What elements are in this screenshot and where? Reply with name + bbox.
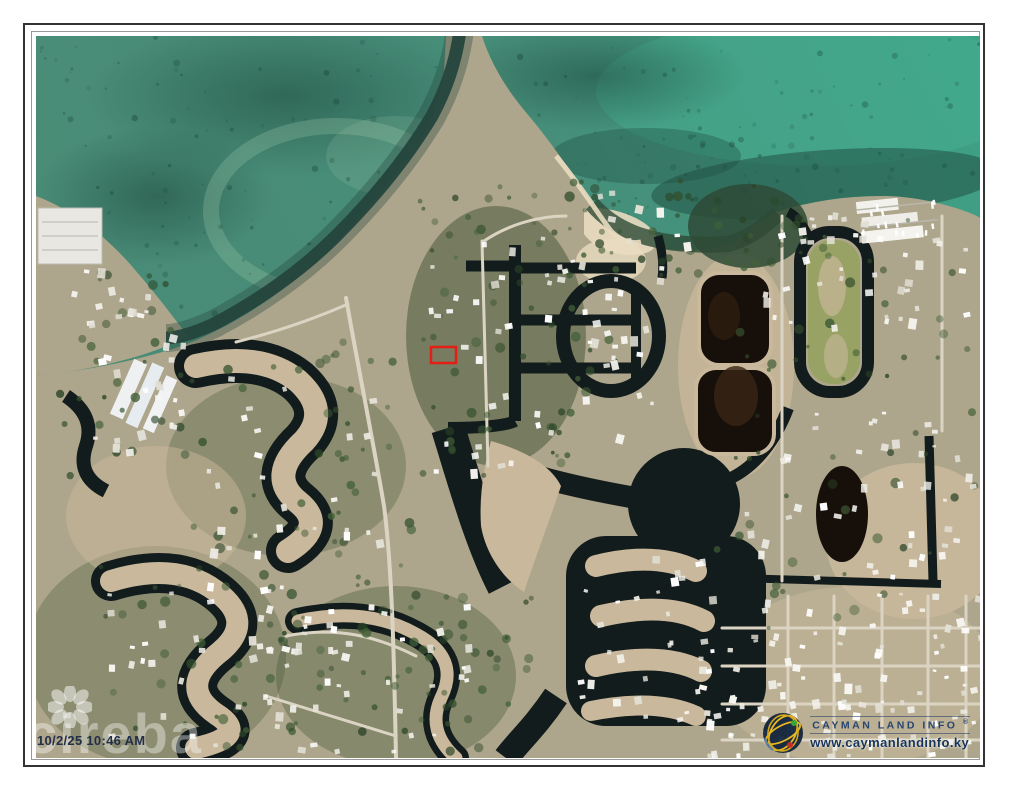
cireba-watermark: cireba: [36, 706, 203, 758]
caymanlandinfo-logo: CAYMAN LAND INFO ® www.caymanlandinfo.ky: [761, 710, 970, 756]
grass-island: [808, 240, 860, 384]
aerial-photo: cireba 10/2/25 10:46 AM CAYMAN LAND INFO…: [36, 36, 980, 758]
provider-text: CAYMAN LAND INFO ® www.caymanlandinfo.ky: [810, 716, 970, 751]
globe-icon: [761, 710, 805, 756]
registered-mark: ®: [963, 719, 968, 726]
parking-lot: [38, 208, 102, 264]
dark-pond: [816, 466, 868, 562]
provider-url: www.caymanlandinfo.ky: [810, 735, 970, 750]
map-document-page: cireba 10/2/25 10:46 AM CAYMAN LAND INFO…: [0, 0, 1012, 794]
provider-name: CAYMAN LAND INFO ®: [810, 716, 970, 735]
aerial-photo-canvas: [36, 36, 980, 758]
timestamp-label: 10/2/25 10:46 AM: [37, 733, 145, 748]
excavated-pond: [696, 273, 774, 454]
